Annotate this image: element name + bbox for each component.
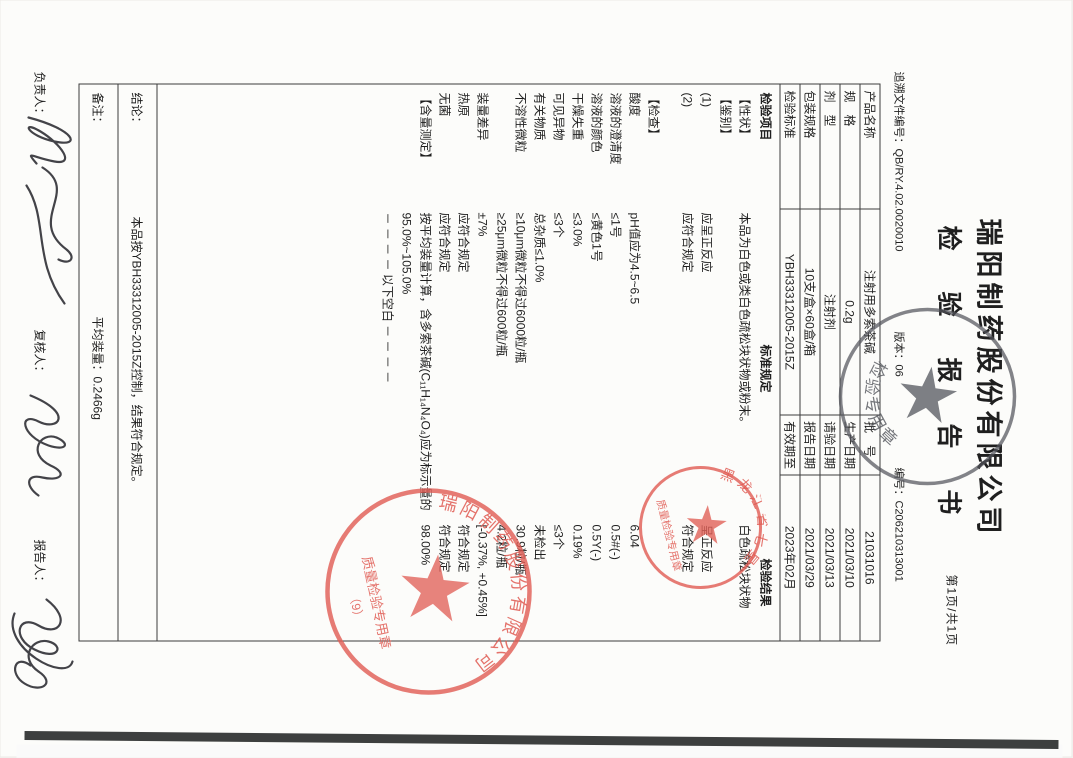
result-cell: 符合规定	[454, 525, 473, 641]
scanned-report-page: 第1页/共1页 瑞阳制药股份有限公司 检 验 报 告 书 追溯文件编号：QB/R…	[0, 0, 1073, 758]
item-cell: 无菌	[435, 85, 454, 213]
result-cell: 30.9粒/瓶	[511, 525, 530, 641]
standard-cell	[663, 213, 678, 525]
company-name: 瑞阳制药股份有限公司	[972, 0, 1011, 758]
item-cell: (1)	[697, 85, 716, 213]
result-row: (1)应呈正反应呈正反应	[697, 85, 716, 641]
result-cell: 0.19%	[568, 525, 587, 641]
result-cell: 未检出	[530, 525, 549, 641]
info-value: 2021/03/13	[820, 475, 840, 641]
result-row: 有关物质总杂质≤1.0%未检出	[530, 85, 549, 641]
reporter-label: 报告人：	[32, 540, 49, 588]
item-cell: 【检查】	[644, 85, 663, 213]
standard-cell: － － － － 以下空白 － － － －	[378, 213, 397, 525]
column-header-result: 检验结果	[758, 525, 775, 641]
info-value: 21031016	[860, 475, 880, 641]
result-cell: 6.04	[625, 525, 644, 641]
result-cell: 98.00%	[397, 525, 435, 641]
item-cell	[378, 85, 397, 213]
item-cell: 【含量测定】	[397, 85, 435, 213]
standard-cell: 应符合规定	[678, 213, 697, 525]
standard-cell: ≤黄色1号	[587, 213, 606, 525]
standard-cell: 本品为白色或类白色疏松块状物或粉末。	[735, 213, 754, 525]
result-table-header: 检验项目 标准规定 检验结果	[754, 85, 780, 641]
column-header-item: 检验项目	[758, 85, 775, 213]
report-table: 产品名称注射用多索茶碱批 号21031016规 格0.2g生产日期2021/03…	[79, 84, 881, 642]
result-row: ≥25μm微粒不得过600粒/瓶4.2粒/瓶	[492, 85, 511, 641]
report-number: 编号：C206210313001	[892, 468, 908, 582]
result-cell: 符合规定	[435, 525, 454, 641]
result-cell: 0.5#(-)	[606, 525, 625, 641]
info-value: 注射剂	[820, 209, 840, 414]
item-cell: 干燥失重	[568, 85, 587, 213]
result-cell	[378, 525, 397, 641]
result-row: 干燥失重≤3.0%0.19%	[568, 85, 587, 641]
item-cell: 溶液的澄清度	[606, 85, 625, 213]
info-label: 产品名称	[860, 84, 880, 209]
standard-cell: 应符合规定	[435, 213, 454, 525]
result-cell	[716, 525, 735, 641]
result-row: 无菌应符合规定符合规定	[435, 85, 454, 641]
result-row: 【性状】本品为白色或类白色疏松块状物或粉末。白色疏松块状物	[735, 85, 754, 641]
result-row: 【含量测定】按平均装量计算，含多索茶碱(C₁₁H₁₄N₄O₄)应为标示量的95.…	[397, 85, 435, 641]
standard-cell: ≤3个	[549, 213, 568, 525]
info-value: 0.2g	[840, 209, 860, 414]
standard-cell	[644, 213, 663, 525]
standard-cell: 总杂质≤1.0%	[530, 213, 549, 525]
conclusion-label: 结论：	[129, 85, 146, 129]
info-label: 剂 型	[820, 84, 840, 209]
info-value: 2021/03/10	[840, 475, 860, 641]
info-label: 检验标准	[780, 84, 800, 209]
info-row: 包装规格10支/盒×60盒/箱报告日期2021/03/29	[800, 84, 820, 641]
result-cell	[663, 525, 678, 641]
info-value: 2021/03/29	[800, 475, 820, 641]
item-cell: (2)	[678, 85, 697, 213]
reviewer-label: 复核人：	[32, 330, 49, 378]
reporter-signature	[1, 592, 81, 722]
standard-cell: ≥10μm微粒不得过6000粒/瓶	[511, 213, 530, 525]
info-value: YBH33312005-2015Z	[780, 209, 800, 414]
item-cell: 【鉴别】	[716, 85, 735, 213]
result-rows: 【性状】本品为白色或类白色疏松块状物或粉末。白色疏松块状物【鉴别】(1)应呈正反…	[158, 85, 754, 641]
result-cell: 呈正反应	[697, 525, 716, 641]
column-header-standard: 标准规定	[758, 213, 775, 525]
item-cell: 热原	[454, 85, 473, 213]
report-title: 检 验 报 告 书	[933, 0, 969, 758]
standard-cell: 应符合规定	[454, 213, 473, 525]
info-row: 规 格0.2g生产日期2021/03/10	[840, 84, 860, 641]
info-row: 产品名称注射用多索茶碱批 号21031016	[860, 84, 880, 641]
conclusion-row: 结论： 本品按YBH33312005-2015Z控制，结果符合规定。	[119, 85, 158, 641]
result-row: 热原应符合规定符合规定	[454, 85, 473, 641]
result-row: 装量差异±7%[-0.37%, +0.45%]	[473, 85, 492, 641]
result-cell: ≤3个	[549, 525, 568, 641]
reviewer-signature	[9, 386, 83, 506]
info-label: 有效期至	[780, 415, 800, 475]
result-cell: [-0.37%, +0.45%]	[473, 525, 492, 641]
item-cell: 可见异物	[549, 85, 568, 213]
item-cell: 装量差异	[473, 85, 492, 213]
info-label: 批 号	[860, 415, 880, 475]
standard-cell	[716, 213, 735, 525]
info-row: 检验标准YBH33312005-2015Z有效期至2023年02月	[780, 84, 800, 641]
trace-number: 追溯文件编号：QB/RY.4.02.0020010	[892, 72, 908, 252]
result-cell: 4.2粒/瓶	[492, 525, 511, 641]
result-table-body: 检验项目 标准规定 检验结果 【性状】本品为白色或类白色疏松块状物或粉末。白色疏…	[80, 84, 780, 642]
info-label: 包装规格	[800, 84, 820, 209]
standard-cell: ±7%	[473, 213, 492, 525]
result-row: (2)应符合规定符合规定	[678, 85, 697, 641]
item-cell: 酸度	[625, 85, 644, 213]
info-row: 剂 型注射剂请验日期2021/03/13	[820, 84, 840, 641]
result-cell: 符合规定	[678, 525, 697, 641]
info-label: 请验日期	[820, 415, 840, 475]
result-row: 【检查】	[644, 85, 663, 641]
standard-cell: ≤1号	[606, 213, 625, 525]
result-row: 酸度pH值应为4.5~6.56.04	[625, 85, 644, 641]
info-label: 规 格	[840, 84, 860, 209]
remark-label: 备注：	[90, 85, 107, 129]
item-cell: 不溶性微粒	[511, 85, 530, 213]
item-cell: 【性状】	[735, 85, 754, 213]
result-cell	[644, 525, 663, 641]
result-row: － － － － 以下空白 － － － －	[378, 85, 397, 641]
item-cell	[663, 85, 678, 213]
info-label: 生产日期	[840, 415, 860, 475]
result-row: 溶液的颜色≤黄色1号0.5Y(-)	[587, 85, 606, 641]
item-cell: 有关物质	[530, 85, 549, 213]
standard-cell: ≤3.0%	[568, 213, 587, 525]
info-value: 10支/盒×60盒/箱	[800, 209, 820, 414]
standard-cell: ≥25μm微粒不得过600粒/瓶	[492, 213, 511, 525]
item-cell	[492, 85, 511, 213]
conclusion-text: 本品按YBH33312005-2015Z控制，结果符合规定。	[129, 217, 146, 489]
result-row: 【鉴别】	[716, 85, 735, 641]
result-row: 溶液的澄清度≤1号0.5#(-)	[606, 85, 625, 641]
version-label: 版本：06	[892, 332, 908, 377]
standard-cell: 应呈正反应	[697, 213, 716, 525]
responsible-signature	[9, 108, 93, 318]
info-label: 报告日期	[800, 415, 820, 475]
info-value: 注射用多索茶碱	[860, 209, 880, 414]
standard-cell: pH值应为4.5~6.5	[625, 213, 644, 525]
result-cell: 0.5Y(-)	[587, 525, 606, 641]
remark-text: 平均装量：0.2466g	[90, 317, 107, 420]
item-cell: 溶液的颜色	[587, 85, 606, 213]
product-info-table: 产品名称注射用多索茶碱批 号21031016规 格0.2g生产日期2021/03…	[780, 84, 881, 642]
result-row: 不溶性微粒≥10μm微粒不得过6000粒/瓶30.9粒/瓶	[511, 85, 530, 641]
standard-cell: 按平均装量计算，含多索茶碱(C₁₁H₁₄N₄O₄)应为标示量的95.0%~105…	[397, 213, 435, 525]
info-value: 2023年02月	[780, 475, 800, 641]
result-row: 可见异物≤3个≤3个	[549, 85, 568, 641]
report-document: 第1页/共1页 瑞阳制药股份有限公司 检 验 报 告 书 追溯文件编号：QB/R…	[0, 0, 1073, 758]
result-row	[663, 85, 678, 641]
result-cell: 白色疏松块状物	[735, 525, 754, 641]
